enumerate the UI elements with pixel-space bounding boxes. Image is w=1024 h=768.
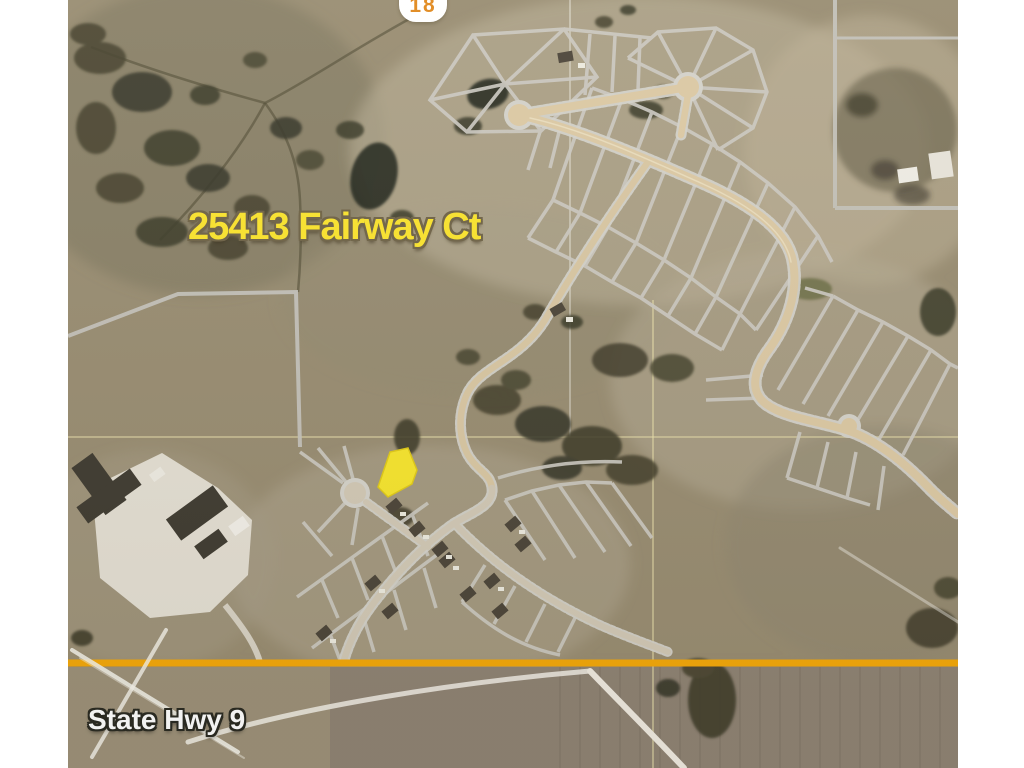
map-drawing bbox=[68, 0, 958, 768]
aerial-map-world: 18 25413 Fairway Ct State Hwy 9 bbox=[68, 0, 958, 768]
address-label: 25413 Fairway Ct bbox=[188, 206, 480, 249]
aerial-map: 18 25413 Fairway Ct State Hwy 9 bbox=[68, 0, 958, 768]
highway-18-shield: 18 bbox=[399, 0, 447, 22]
highway-18-number: 18 bbox=[409, 0, 436, 18]
state-hwy-9-label: State Hwy 9 bbox=[88, 704, 245, 736]
